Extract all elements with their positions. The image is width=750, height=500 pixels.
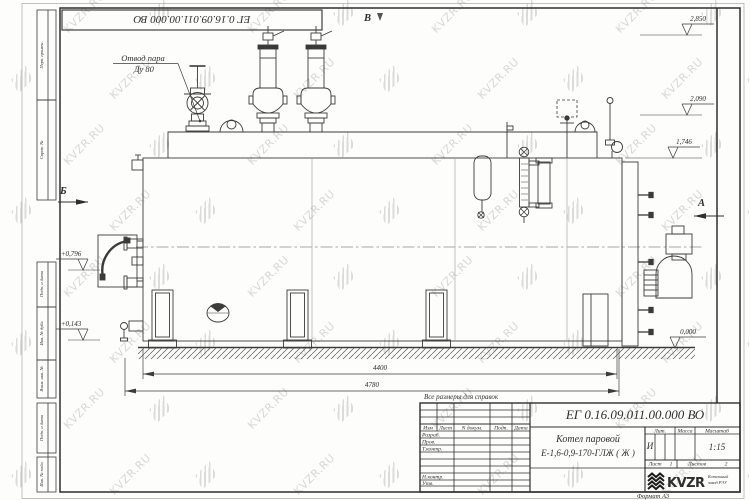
dimension-4400: 4400 bbox=[143, 364, 617, 376]
safety-valve-2 bbox=[297, 26, 335, 132]
elevation-2850: 2,850 bbox=[640, 15, 714, 35]
steam-drum-band bbox=[168, 132, 597, 158]
mass-header: Масса bbox=[677, 429, 693, 435]
reference-note: Все размеры для справок bbox=[424, 393, 499, 401]
row-prov: Пров. bbox=[421, 440, 435, 446]
title-product-name: Котел паровой bbox=[555, 434, 620, 445]
rear-wall bbox=[622, 162, 653, 346]
steam-outlet-valve bbox=[184, 66, 211, 131]
callout-line1: Отвод пара bbox=[121, 53, 164, 63]
elevation-0000: 0,000 bbox=[670, 328, 706, 348]
view-markers: В Б А bbox=[58, 13, 724, 219]
row-nkontr: Н.контр. bbox=[421, 475, 444, 481]
front-door-box bbox=[98, 235, 143, 287]
margin-label-sprav-n: Справ. № bbox=[39, 140, 44, 159]
elevation-2850-value: 2,850 bbox=[690, 15, 706, 23]
water-level-gauge bbox=[474, 147, 552, 223]
margin-label-inv-podl: Инв. № подл. bbox=[39, 461, 44, 487]
row-razrab: Разраб. bbox=[421, 432, 440, 439]
scale-header: Масштаб bbox=[704, 428, 729, 435]
manhole bbox=[207, 303, 229, 322]
scale-value: 1:15 bbox=[709, 442, 726, 452]
elevation-0143-value: +0,143 bbox=[61, 320, 82, 328]
elevation-0796: +0,796 bbox=[56, 250, 100, 270]
title-product-designation: Е-1,6-0,9-170-ГЛЖ ( Ж ) bbox=[540, 448, 635, 458]
top-stamp: ЕГ 0.16.09.011.00.000 ВО bbox=[62, 10, 322, 30]
col-podp: Подп. bbox=[493, 425, 508, 432]
kvzr-logo-text: KVZR bbox=[667, 476, 705, 491]
title-block-texts: ЕГ 0.16.09.011.00.000 ВО Котел паровой Е… bbox=[421, 407, 729, 487]
elevation-0000-value: 0,000 bbox=[680, 328, 696, 336]
boiler-view bbox=[98, 26, 704, 359]
margin-label-podp-data-2: Подп. и дата bbox=[39, 414, 44, 442]
ground bbox=[138, 348, 695, 360]
col-data: Дата bbox=[513, 426, 527, 432]
format-note: Формат А3 bbox=[637, 493, 670, 500]
sheet-label: Лист bbox=[647, 462, 661, 468]
row-tkontr: Т.контр. bbox=[422, 447, 442, 453]
col-list: Лист bbox=[438, 426, 452, 432]
view-marker-right: А bbox=[697, 198, 705, 209]
boiler-general-view-drawing: Перв. примен. Справ. № Подп. и дата Инв.… bbox=[0, 0, 750, 500]
elevation-0796-value: +0,796 bbox=[61, 250, 82, 258]
logo-subtext-1: Котельный bbox=[707, 474, 729, 479]
view-marker-left: Б bbox=[59, 186, 67, 197]
dimension-4780: 4780 bbox=[125, 381, 619, 393]
lit-header: Лит. bbox=[653, 429, 666, 435]
drain-valve bbox=[121, 321, 144, 341]
top-stamp-doc-number: ЕГ 0.16.09.011.00.000 ВО bbox=[133, 13, 251, 25]
elevation-1746-value: 1,746 bbox=[676, 138, 692, 146]
sheet-value: 1 bbox=[670, 462, 673, 468]
sheets-label: Листов bbox=[687, 462, 707, 468]
view-marker-top: В bbox=[363, 13, 371, 24]
elevation-2090: 2,090 bbox=[640, 95, 714, 115]
title-doc-number: ЕГ 0.16.09.011.00.000 ВО bbox=[565, 407, 705, 422]
callout-line2: Ду 80 bbox=[133, 64, 155, 74]
margin-label-podp-data-1: Подп. и дата bbox=[39, 270, 44, 298]
margin-label-inv-dubl: Инв. № дубл. bbox=[39, 320, 44, 346]
logo-subtext-2: завод РЭУ bbox=[707, 480, 728, 485]
kvzr-zigzag-icon bbox=[648, 474, 664, 490]
elevation-1746: 1,746 bbox=[625, 138, 702, 158]
row-utv: Утв. bbox=[422, 481, 434, 487]
dimension-4780-value: 4780 bbox=[365, 381, 380, 389]
drum-top-fittings bbox=[507, 98, 623, 159]
elevation-2090-value: 2,090 bbox=[690, 95, 706, 103]
sheet-borders bbox=[22, 4, 744, 499]
col-izm: Изм bbox=[422, 426, 433, 432]
margin-label-vzam-inv: Взам. инв. № bbox=[39, 366, 44, 392]
dimension-4400-value: 4400 bbox=[373, 364, 388, 372]
margin-block-labels: Перв. примен. Справ. № Подп. и дата Инв.… bbox=[39, 41, 44, 487]
company-logo: KVZR Котельный завод РЭУ bbox=[648, 474, 729, 492]
elevation-marks: 2,850 2,090 1,746 +0,796 bbox=[56, 15, 714, 348]
safety-valve bbox=[249, 26, 287, 132]
sheets-value: 2 bbox=[725, 462, 728, 468]
lit-value: И bbox=[646, 441, 654, 451]
front-wall-fittings bbox=[124, 155, 143, 289]
col-ndoc: N докум. bbox=[461, 425, 483, 432]
steam-outlet-callout: Отвод пара Ду 80 bbox=[113, 53, 201, 122]
drawing-sheet: KVZR.RUKVZR.RUKVZR.RUKVZR.RUKVZR.RUKVZR.… bbox=[0, 0, 750, 500]
elevation-0143: +0,143 bbox=[56, 320, 100, 340]
margin-label-perv-primen: Перв. примен. bbox=[39, 41, 44, 69]
support-saddles bbox=[149, 290, 609, 348]
